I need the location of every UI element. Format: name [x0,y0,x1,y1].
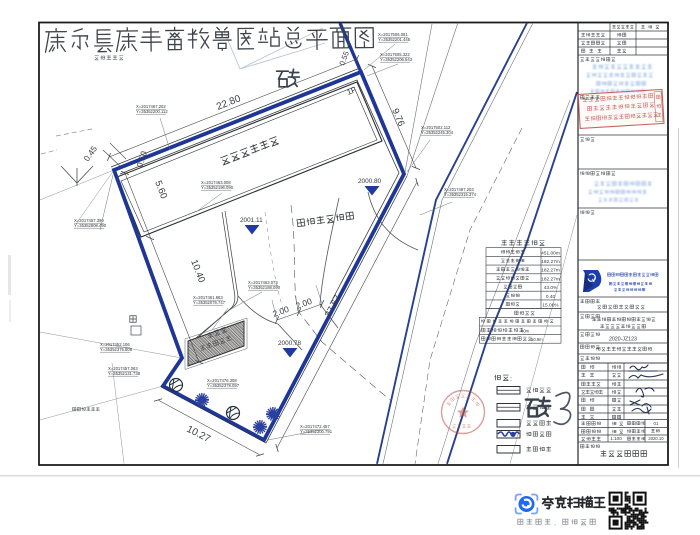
svg-text:01: 01 [654,421,659,426]
svg-text:Y=35352300.791: Y=35352300.791 [300,429,333,434]
svg-text:,: , [554,518,556,527]
svg-text:Y=35352206.543: Y=35352206.543 [380,57,413,62]
svg-text::: : [510,376,512,383]
svg-text:2020.10: 2020.10 [648,436,664,441]
svg-text:Y=35352076.747: Y=35352076.747 [193,300,226,305]
svg-text:15.00%: 15.00% [542,303,559,309]
svg-text:1:100: 1:100 [610,436,622,441]
svg-text:0.40: 0.40 [546,294,556,300]
svg-text:Y=35352315.374: Y=35352315.374 [444,192,477,197]
svg-text:Y=35352196.090: Y=35352196.090 [201,185,234,190]
svg-text:Y=35352808.490: Y=35352808.490 [74,223,107,228]
svg-text:Y=35352200.112: Y=35352200.112 [136,109,168,114]
svg-text:Y=35352188.090: Y=35352188.090 [248,285,281,290]
svg-text:Y=35352131.738: Y=35352131.738 [108,371,141,376]
svg-text:182.27m: 182.27m [541,259,560,265]
svg-text:2001.11: 2001.11 [240,217,263,224]
svg-text:182.27m: 182.27m [541,268,560,274]
svg-text:40m: 40m [521,329,530,334]
svg-text:Y=35352201.445: Y=35352201.445 [378,37,411,42]
svg-text:2000.78: 2000.78 [278,340,302,347]
svg-text:Y=35352375.806: Y=35352375.806 [100,347,133,352]
svg-text:Y=35352378.097: Y=35352378.097 [207,383,240,388]
svg-text:2020-JZ123: 2020-JZ123 [609,337,637,343]
svg-text:451.00m: 451.00m [541,250,560,256]
svg-text:2000.80: 2000.80 [358,178,382,185]
svg-text:Y=35352245.304: Y=35352245.304 [421,130,454,135]
svg-text:182.27m: 182.27m [541,276,560,282]
svg-text:50.9m: 50.9m [531,337,543,342]
svg-text:43.0%: 43.0% [544,285,558,291]
